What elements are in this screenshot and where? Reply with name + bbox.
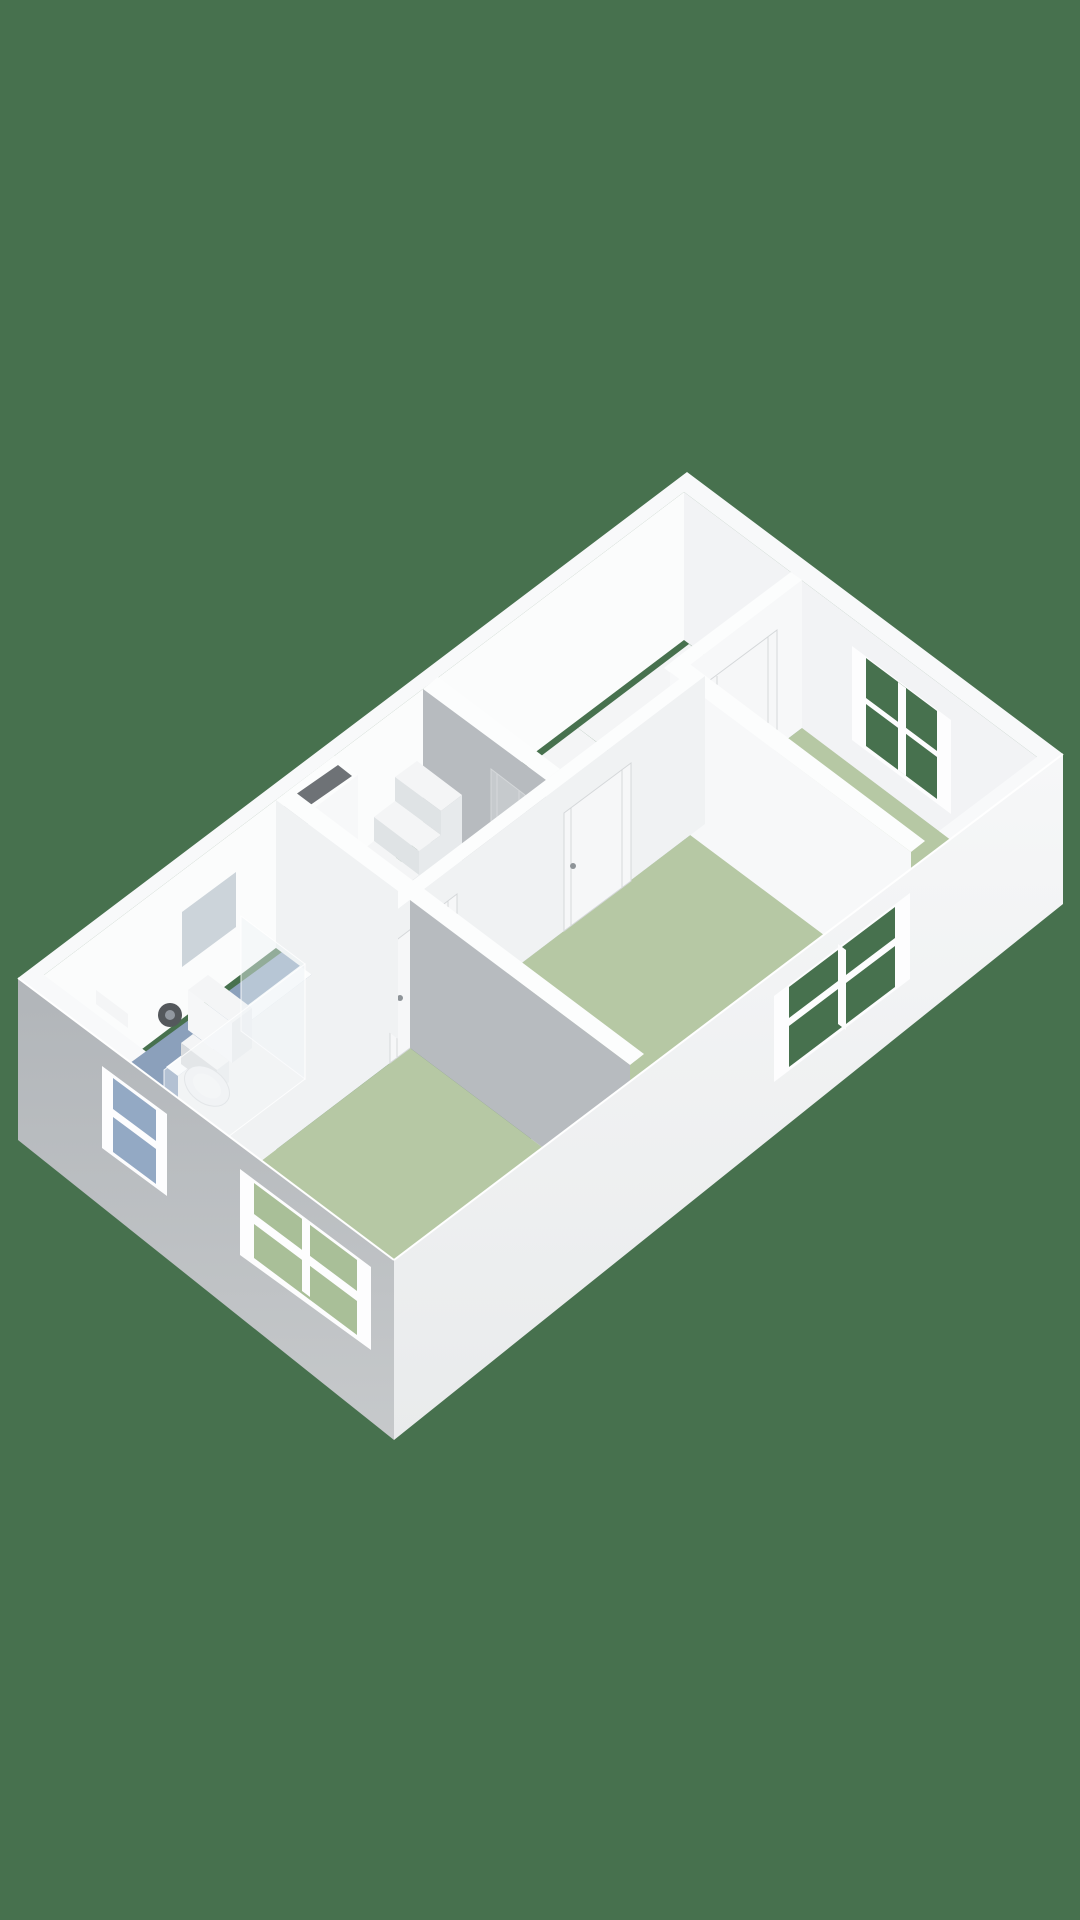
shower-mixer-knob [165,1010,175,1020]
floorplan-3d-render [0,0,1080,1920]
door-handle [570,863,576,869]
